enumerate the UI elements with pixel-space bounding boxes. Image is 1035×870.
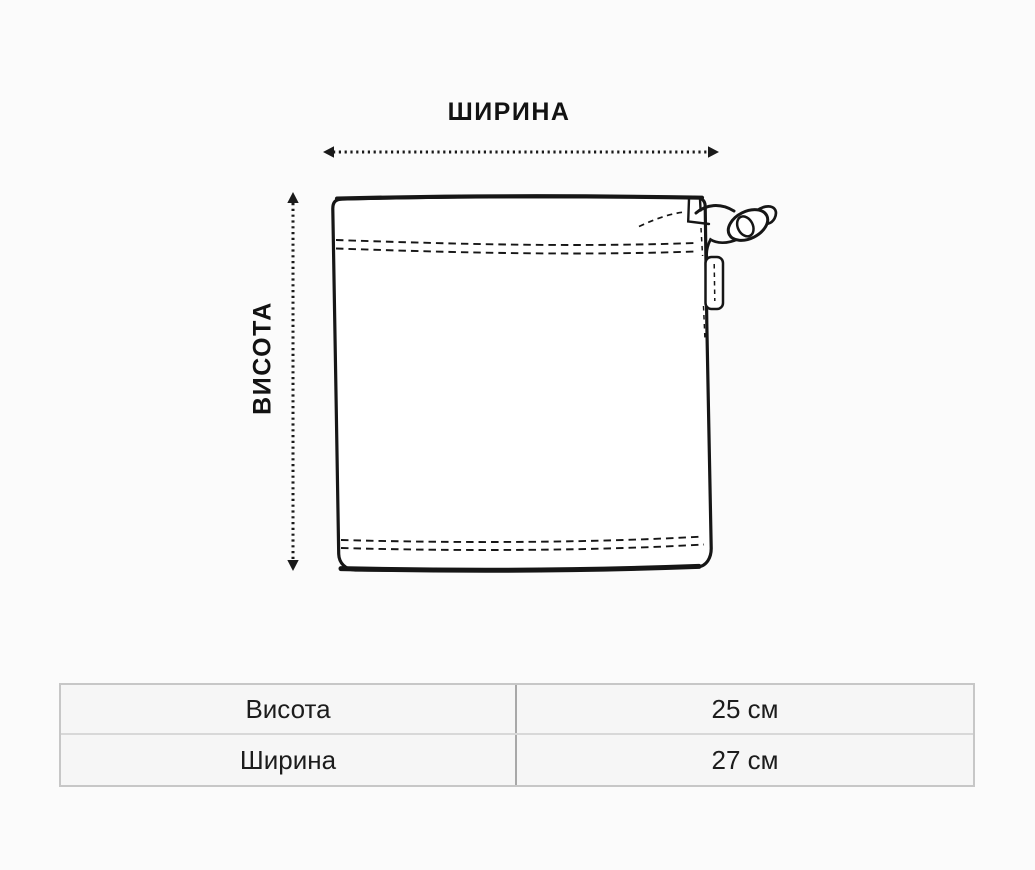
side-tab [706, 257, 724, 309]
table-row-width: Ширина 27 см [61, 735, 973, 785]
width-arrow [323, 146, 719, 158]
height-row-value: 25 см [517, 685, 973, 733]
size-table: Висота 25 см Ширина 27 см [59, 683, 975, 787]
width-row-label: Ширина [61, 735, 517, 785]
width-row-value: 27 см [517, 735, 973, 785]
height-arrow [287, 192, 298, 571]
pouch-illustration [0, 0, 1035, 660]
height-row-label: Висота [61, 685, 517, 733]
table-row-height: Висота 25 см [61, 685, 973, 735]
dimension-diagram-page: ШИРИНА ВИСОТА [0, 0, 1035, 870]
